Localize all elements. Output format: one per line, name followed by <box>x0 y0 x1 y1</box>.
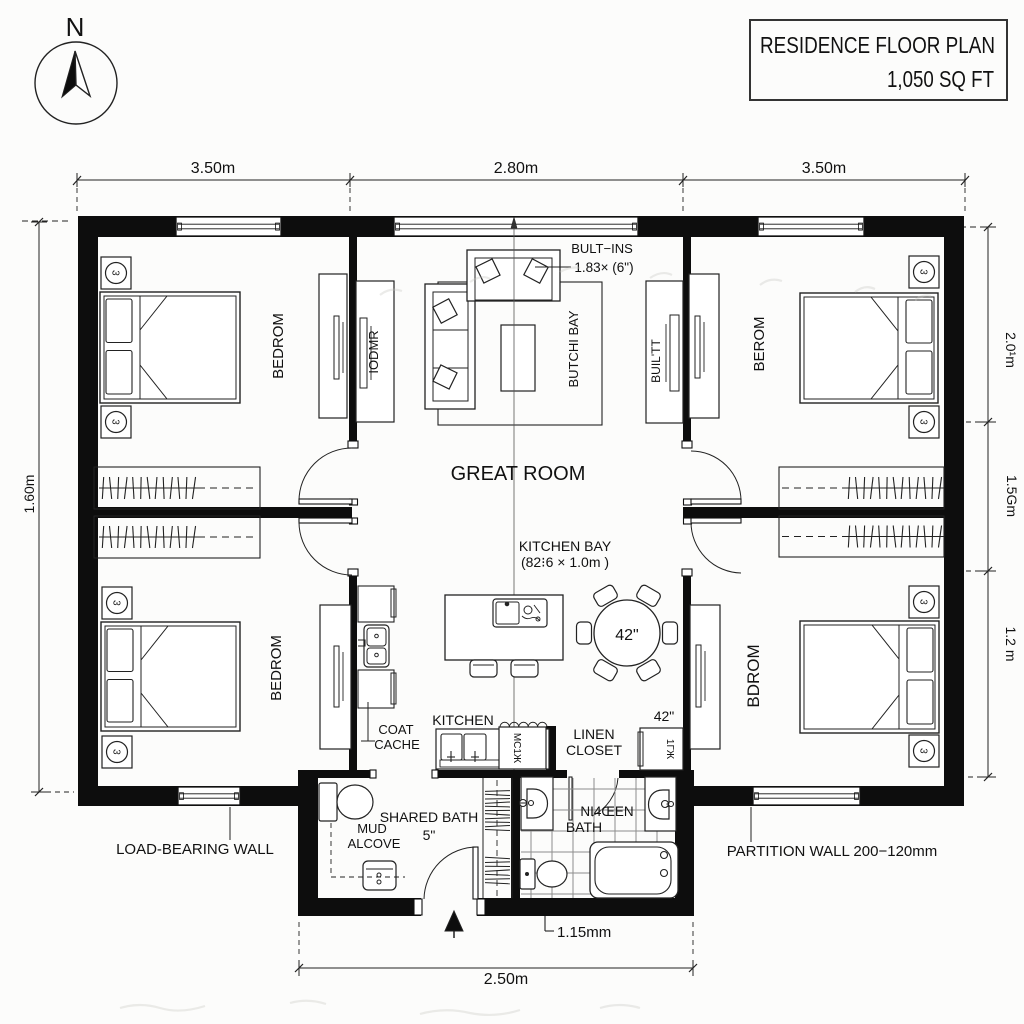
svg-text:1.5Gm: 1.5Gm <box>1004 475 1020 517</box>
svg-text:N: N <box>66 12 85 42</box>
svg-text:3.50m: 3.50m <box>191 160 235 177</box>
svg-text:IODMR: IODMR <box>366 330 381 373</box>
svg-text:1.60m: 1.60m <box>21 475 37 514</box>
svg-text:ALCOVE: ALCOVE <box>348 836 401 851</box>
svg-text:CLOSET: CLOSET <box>566 742 622 758</box>
svg-text:BEDROM: BEDROM <box>268 635 285 701</box>
svg-text:KITCHEN BAY: KITCHEN BAY <box>519 538 612 554</box>
svg-text:BUIL'TT: BUIL'TT <box>649 339 663 383</box>
svg-text:CACHE: CACHE <box>374 737 420 752</box>
svg-text:2.0¹m: 2.0¹m <box>1003 332 1019 368</box>
svg-text:1ГЖ: 1ГЖ <box>664 739 675 760</box>
svg-text:1.15mm: 1.15mm <box>557 924 611 941</box>
svg-text:MС1Ж: MС1Ж <box>511 733 522 764</box>
svg-text:5": 5" <box>423 827 436 843</box>
svg-text:BDROM: BDROM <box>744 644 763 707</box>
svg-text:NІ4ŒEN: NІ4ŒEN <box>580 804 633 819</box>
svg-text:SHARED BATH: SHARED BATH <box>380 809 479 825</box>
svg-text:BEROM: BEROM <box>751 316 768 371</box>
svg-text:(82⁝6 × 1.0m ): (82⁝6 × 1.0m ) <box>521 554 609 570</box>
svg-text:LINEN: LINEN <box>573 726 614 742</box>
svg-text:1.83× (6"): 1.83× (6") <box>574 260 633 275</box>
svg-text:BUTCHI BAY: BUTCHI BAY <box>566 310 581 387</box>
svg-text:42": 42" <box>615 627 638 644</box>
svg-text:PARTITION WALL 200−120mm: PARTITION WALL 200−120mm <box>727 843 938 860</box>
svg-text:42": 42" <box>654 708 675 724</box>
svg-text:COAT: COAT <box>378 722 413 737</box>
svg-text:LOAD-BEARING WALL: LOAD-BEARING WALL <box>116 841 274 858</box>
svg-text:BEDROM: BEDROM <box>270 313 287 379</box>
svg-text:2.50m: 2.50m <box>484 971 528 988</box>
svg-text:1.2 m: 1.2 m <box>1003 626 1019 661</box>
svg-text:BULT−INS: BULT−INS <box>571 241 633 256</box>
svg-text:BATH: BATH <box>566 819 602 835</box>
svg-text:2.80m: 2.80m <box>494 160 538 177</box>
svg-text:s: s <box>666 802 670 809</box>
svg-text:KITCHEN: KITCHEN <box>432 712 493 728</box>
svg-text:RESIDENCE FLOOR PLAN: RESIDENCE FLOOR PLAN <box>760 32 995 58</box>
svg-text:GREAT ROOM: GREAT ROOM <box>451 463 586 485</box>
svg-text:1,050 SQ FT: 1,050 SQ FT <box>887 66 994 92</box>
svg-text:3.50m: 3.50m <box>802 160 846 177</box>
